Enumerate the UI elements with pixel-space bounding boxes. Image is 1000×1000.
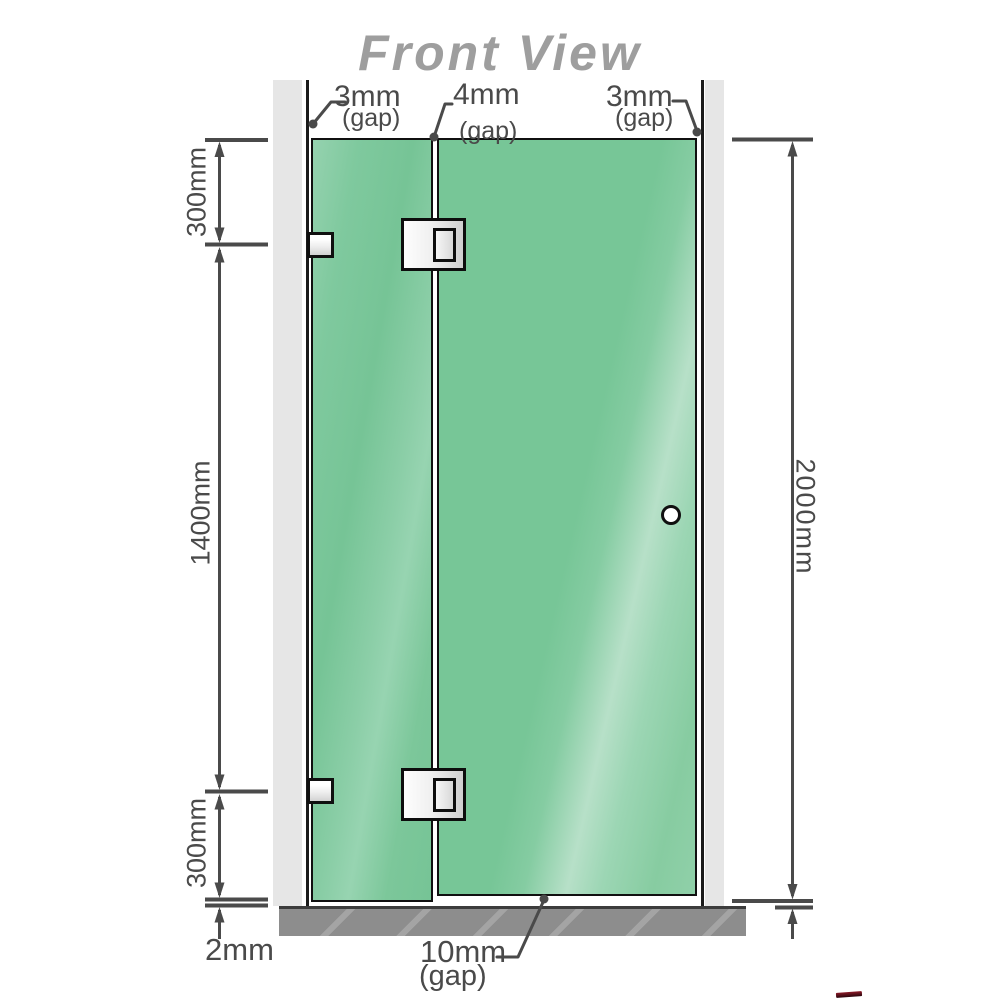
door-glass-panel [437, 138, 697, 896]
right-wall [705, 80, 724, 906]
gap-right-unit: (gap) [615, 106, 673, 131]
dim-floor-2mm: 2mm [205, 934, 274, 965]
wall-bracket-bottom [307, 778, 334, 804]
logo-fragment [836, 991, 862, 998]
dim-total-2000mm: 2000mm [792, 458, 819, 575]
hinge-bottom-clamp [433, 778, 456, 812]
front-view-diagram: Front View [0, 0, 1000, 1000]
dim-bottom-300mm: 300mm [184, 798, 211, 888]
page-title: Front View [0, 24, 1000, 82]
gap-bottom-unit: (gap) [419, 962, 487, 991]
door-handle [661, 505, 681, 525]
wall-bracket-top [307, 232, 334, 258]
left-wall [273, 80, 302, 906]
dim-middle-1400mm: 1400mm [188, 460, 215, 565]
gap-middle-value: 4mm [453, 80, 520, 110]
gap-middle-unit: (gap) [459, 119, 517, 144]
hinge-top-clamp [433, 228, 456, 262]
dim-top-300mm: 300mm [184, 147, 211, 237]
gap-left-unit: (gap) [342, 106, 400, 131]
floor-base [279, 906, 746, 936]
right-wall-edge-line [701, 80, 704, 906]
